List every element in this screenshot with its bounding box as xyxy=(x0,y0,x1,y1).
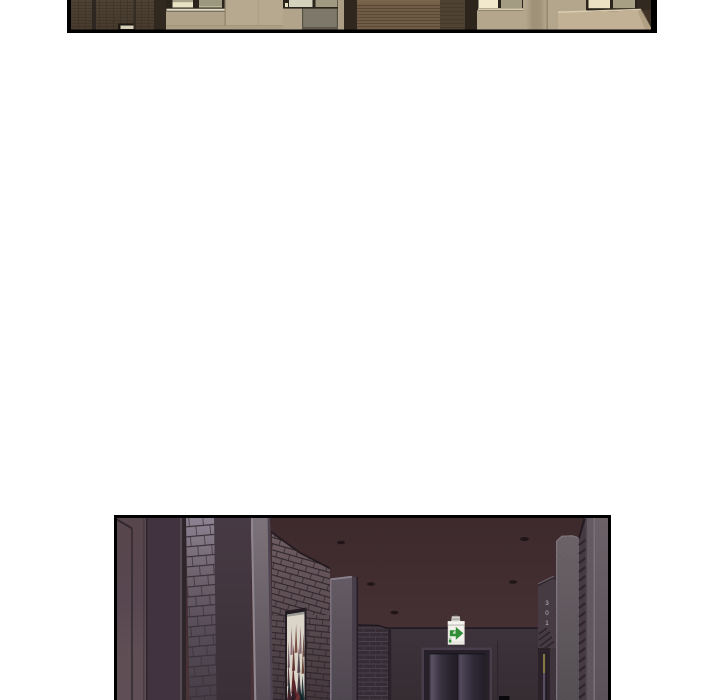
svg-text:1: 1 xyxy=(545,620,549,627)
svg-text:0: 0 xyxy=(545,610,549,617)
svg-text:3: 3 xyxy=(545,600,549,607)
